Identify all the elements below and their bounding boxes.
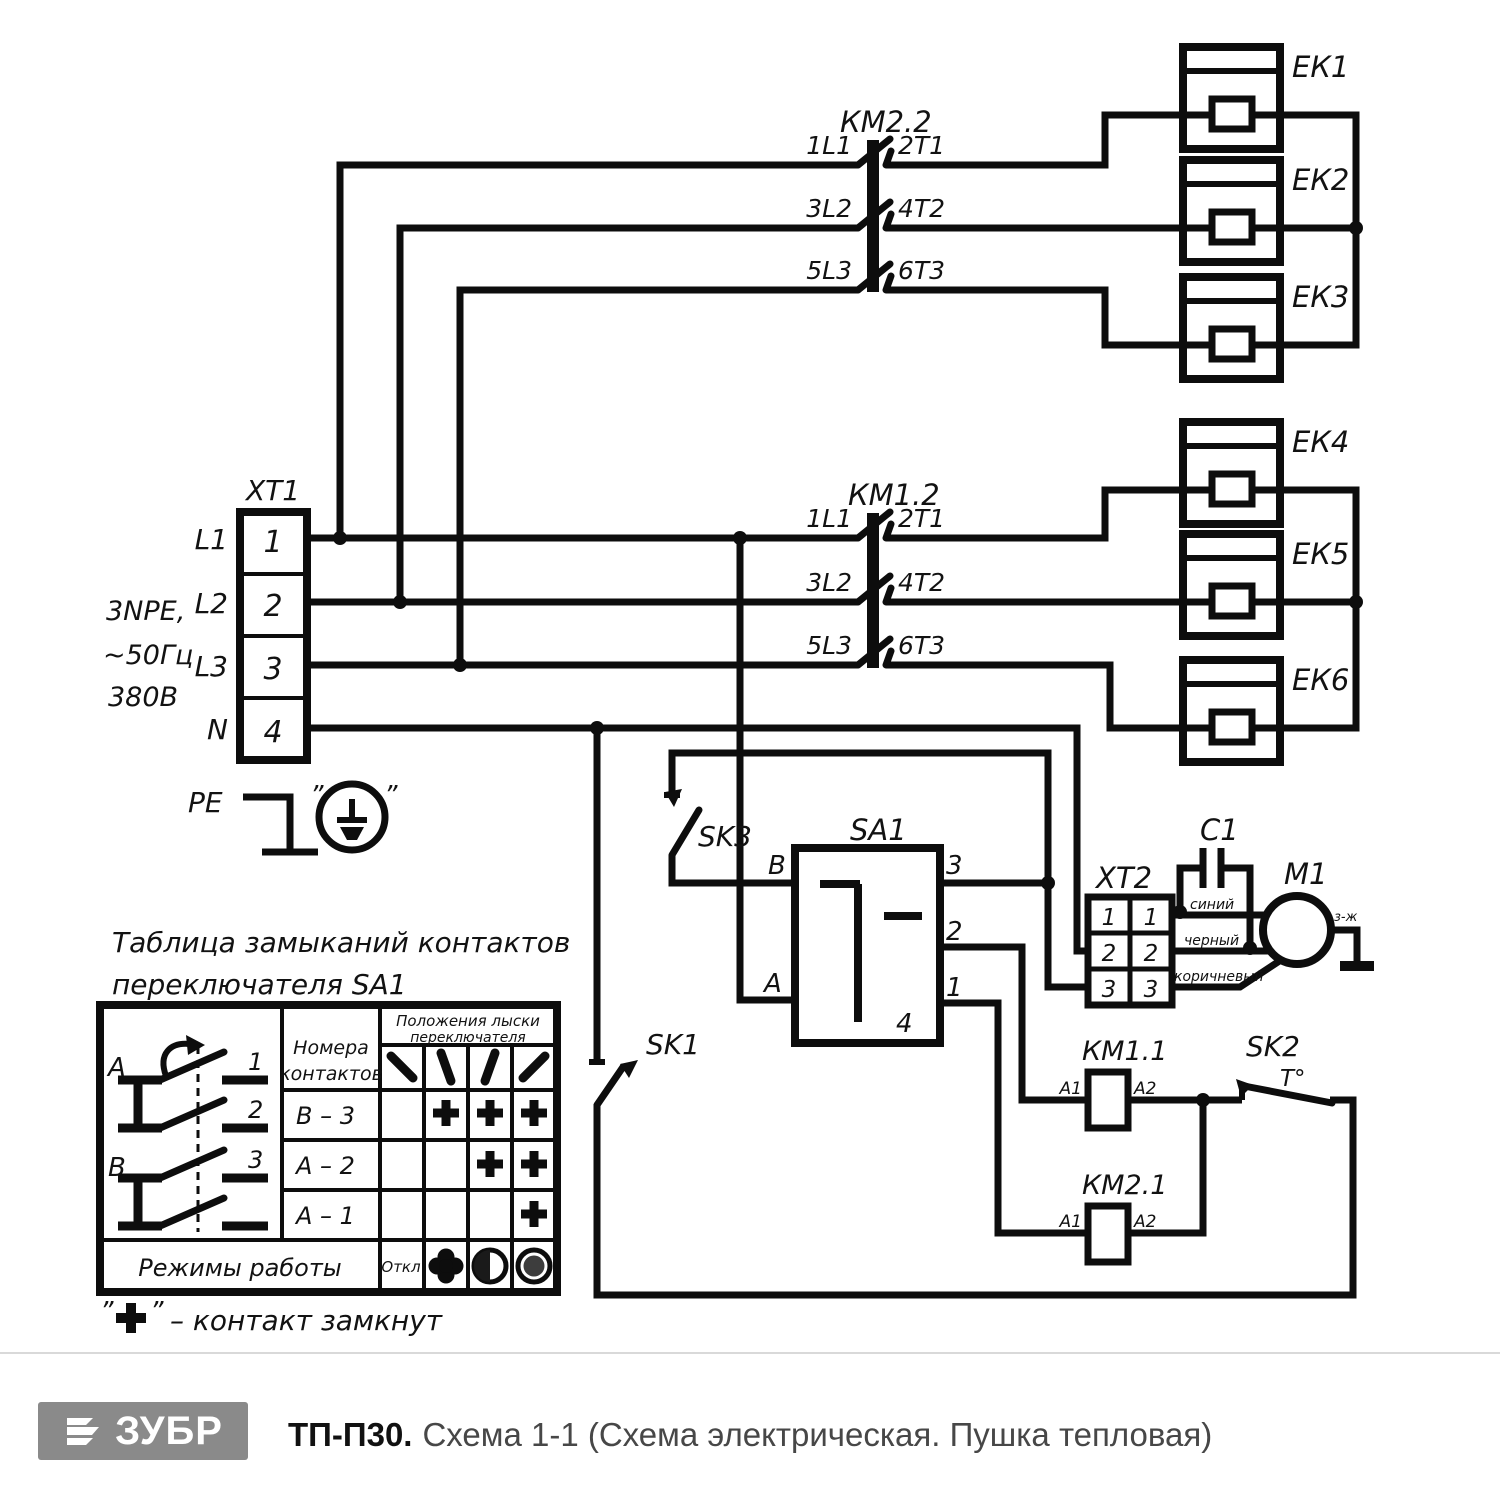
sa1-switch: SA1 B A 3 2 1 4 [762, 813, 963, 1043]
ground-wire-label: з-ж [1334, 910, 1358, 925]
wire-6t3-ek3 [886, 290, 1183, 345]
knob-position-1-icon [391, 1056, 413, 1078]
xt2-l1: 1 [1102, 905, 1117, 931]
supply-line-2: ~50Гц [103, 640, 193, 671]
km12-link-bar [867, 513, 879, 668]
table-title-2: переключателя SA1 [112, 968, 407, 1001]
wire-riser-l3 [460, 290, 858, 665]
positions-header-2: переключателя [410, 1030, 525, 1046]
sk3-label: SK3 [698, 820, 752, 853]
sa1-term-1: 1 [946, 973, 963, 1003]
xt1-title: ХТ1 [244, 474, 300, 507]
sk2-thermostat: SK2 Т° [1236, 1030, 1332, 1103]
ek4-label: ЕК4 [1292, 425, 1349, 459]
ek5-label: ЕК5 [1292, 537, 1349, 571]
pe-label: PE [188, 786, 223, 819]
wire-sk1-bottom-bus [597, 1100, 1353, 1295]
km21-a2: А2 [1133, 1212, 1156, 1232]
row-b3-label: B – 3 [296, 1102, 355, 1130]
legend-quote-left: ” [100, 1297, 114, 1327]
sa1-term-b: B [768, 851, 786, 881]
positions-header-1: Положения лыски [396, 1012, 540, 1030]
brand-name: ЗУБР [115, 1409, 223, 1454]
ek3-label: ЕК3 [1292, 280, 1349, 314]
sk1-switch: SK1 [589, 1028, 700, 1105]
contacts-header-1: Номера [293, 1037, 369, 1059]
km21-title: КМ2.1 [1082, 1170, 1167, 1201]
knob-position-3-icon [485, 1053, 495, 1081]
contacts-header-2: контактов [279, 1063, 383, 1085]
drawing-subtitle: Схема 1-1 (Схема электрическая. Пушка те… [422, 1416, 1212, 1453]
zubr-logo-icon [63, 1411, 107, 1451]
xt1-cell-4: 4 [263, 715, 282, 750]
xt2-title: ХТ2 [1094, 861, 1152, 895]
c1-capacitor: С1 [1200, 813, 1239, 888]
km22-4t2: 4Т2 [898, 194, 945, 223]
xt2-r3: 3 [1144, 977, 1159, 1003]
wire-pe [243, 797, 318, 852]
xt2-l2: 2 [1102, 941, 1117, 967]
xt1-cell-3: 3 [263, 652, 282, 687]
closure-marks [433, 1100, 547, 1227]
wire-riser-l1 [340, 165, 858, 538]
diagram-contact-1: 1 [248, 1048, 263, 1076]
row-a1-label: A – 1 [294, 1202, 355, 1230]
wire-riser-l2 [400, 228, 858, 602]
sk2-temp-label: Т° [1280, 1066, 1306, 1092]
knob-position-2-icon [441, 1053, 451, 1081]
xt2-terminal-block: ХТ2 1 2 3 1 2 3 [1088, 861, 1172, 1005]
km21-coil: КМ2.1 А1 А2 [1059, 1170, 1168, 1262]
sa1-closure-table: Таблица замыканий контактов переключател… [100, 926, 570, 1337]
km21-a1: А1 [1059, 1212, 1082, 1232]
km12-2t1: 2Т1 [898, 504, 945, 533]
xt1-phase-l1: L1 [195, 523, 228, 556]
m1-label: М1 [1284, 857, 1327, 891]
km12-6t3: 6Т3 [898, 631, 945, 660]
ek1-label: ЕК1 [1292, 50, 1349, 84]
km11-a1: А1 [1059, 1079, 1082, 1099]
km12-3l2: 3L2 [806, 568, 852, 597]
sa1-term-4: 4 [896, 1009, 913, 1039]
km12-contacts: КМ1.2 1L1 2Т1 3L2 4Т2 5L3 6Т3 [806, 478, 945, 668]
diagram-b-label: B [108, 1153, 126, 1183]
sa1-term-3: 3 [946, 851, 963, 881]
xt1-cell-1: 1 [263, 525, 282, 560]
heater-ek3: ЕК3 [1183, 277, 1349, 379]
ek6-label: ЕК6 [1292, 663, 1349, 697]
diagram-contact-3: 3 [248, 1146, 263, 1174]
row-a2-label: A – 2 [294, 1152, 355, 1180]
sa1-term-2: 2 [946, 917, 963, 947]
km12-4t2: 4Т2 [898, 568, 945, 597]
legend-quote-right: ” [150, 1297, 164, 1327]
xt1-phase-n: N [207, 713, 228, 746]
heater-ek5: ЕК5 [1183, 534, 1349, 636]
wire-sa1-2-km11 [940, 947, 1088, 1100]
wire-blue-label: синий [1190, 897, 1234, 913]
mode-full-heat-icon [518, 1250, 550, 1282]
legend-text: – контакт замкнут [170, 1304, 443, 1337]
xt2-r2: 2 [1144, 941, 1159, 967]
table-title-1: Таблица замыканий контактов [112, 926, 570, 959]
sk2-label: SK2 [1246, 1030, 1300, 1063]
electrical-schematic: ХТ1 L1 L2 L3 N 1 2 3 4 3NPE, ~50Гц 380В … [0, 0, 1500, 1500]
c1-label: С1 [1200, 813, 1239, 847]
sa1-title: SA1 [850, 813, 907, 847]
km22-5l3: 5L3 [806, 256, 852, 285]
km11-coil: КМ1.1 А1 А2 [1059, 1036, 1168, 1128]
zubr-logo: ЗУБР [38, 1402, 248, 1460]
km12-5l3: 5L3 [806, 631, 852, 660]
xt2-l3: 3 [1102, 977, 1117, 1003]
table-legend: ” ” – контакт замкнут [100, 1297, 443, 1337]
km22-link-bar [867, 140, 879, 292]
heater-ek6: ЕК6 [1183, 660, 1349, 762]
model-number: ТП-П30. [288, 1416, 412, 1453]
mode-half-heat-icon [474, 1250, 506, 1282]
wire-sa1-a [740, 538, 795, 1000]
wire-black-label: черный [1184, 933, 1239, 949]
heater-ek1: ЕК1 [1183, 47, 1349, 149]
diagram-contact-2: 2 [248, 1096, 263, 1124]
mode-fan-icon [429, 1249, 464, 1284]
earth-icon [319, 784, 385, 850]
mode-off-label: Откл [381, 1258, 421, 1276]
sk1-label: SK1 [646, 1028, 700, 1061]
xt2-r1: 1 [1144, 905, 1159, 931]
wire-6t3-ek6 [886, 665, 1183, 728]
supply-line-1: 3NPE, [106, 596, 185, 627]
diagram-a-label: A [106, 1053, 126, 1083]
xt1-terminal-block: ХТ1 L1 L2 L3 N 1 2 3 4 3NPE, ~50Гц 380В [103, 474, 307, 760]
km12-1l1: 1L1 [806, 504, 852, 533]
heater-ek4: ЕК4 [1183, 422, 1349, 524]
modes-label: Режимы работы [138, 1254, 342, 1282]
sa1-term-a: A [762, 969, 782, 999]
wire-brown-label: коричневый [1174, 969, 1263, 985]
km22-contacts: КМ2.2 1L1 2Т1 3L2 4Т2 5L3 6Т3 [806, 105, 945, 292]
km22-1l1: 1L1 [806, 131, 852, 160]
km22-6t3: 6Т3 [898, 256, 945, 285]
knob-position-4-icon [523, 1056, 545, 1078]
sa1-mini-diagram: A B 1 2 3 [106, 1035, 268, 1232]
ek2-label: ЕК2 [1292, 163, 1349, 197]
km22-2t1: 2Т1 [898, 131, 945, 160]
km22-3l2: 3L2 [806, 194, 852, 223]
supply-line-3: 380В [108, 682, 178, 713]
wire-sa1-1-km21 [940, 1003, 1088, 1233]
km11-a2: А2 [1133, 1079, 1156, 1099]
xt1-phase-l2: L2 [195, 587, 228, 620]
xt1-cell-2: 2 [263, 589, 282, 624]
heater-ek2: ЕК2 [1183, 160, 1349, 262]
footer-divider [0, 1352, 1500, 1354]
xt1-phase-l3: L3 [195, 650, 228, 683]
km11-title: КМ1.1 [1082, 1036, 1167, 1067]
drawing-caption: ТП-П30.Схема 1-1 (Схема электрическая. П… [288, 1416, 1212, 1454]
